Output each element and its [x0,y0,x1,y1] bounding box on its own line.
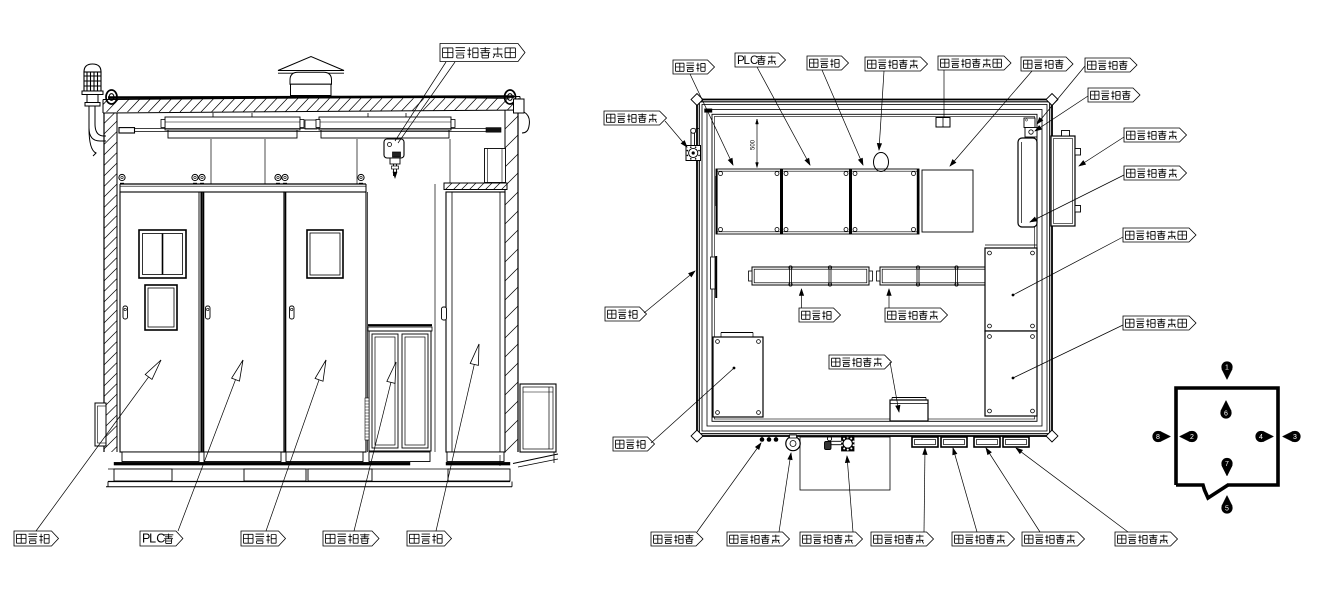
svg-text:7: 7 [1225,461,1229,468]
svg-text:L: L [149,532,156,546]
svg-text:C: C [156,532,165,546]
svg-text:8: 8 [1156,434,1160,441]
svg-text:3: 3 [1293,434,1297,441]
svg-text:500: 500 [751,139,757,150]
svg-text:2: 2 [1190,434,1194,441]
svg-text:C: C [750,55,758,67]
svg-text:6: 6 [1224,411,1228,418]
svg-text:4: 4 [1259,434,1263,441]
svg-text:5: 5 [1225,506,1229,513]
svg-text:1: 1 [1225,365,1229,372]
